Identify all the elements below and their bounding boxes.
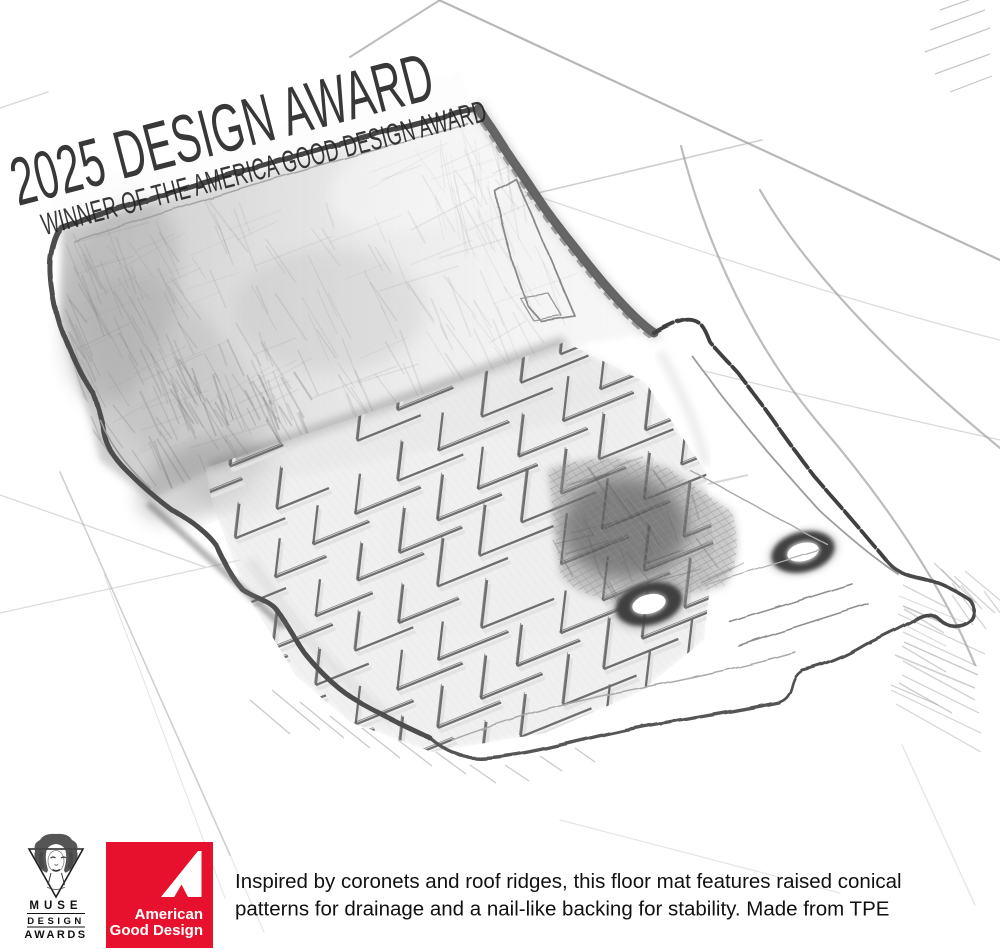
svg-text:AWARDS: AWARDS <box>24 929 87 941</box>
svg-text:Good Design: Good Design <box>110 922 203 939</box>
svg-text:Inspired by coronets and roof: Inspired by coronets and roof ridges, th… <box>235 870 902 893</box>
svg-text:American: American <box>135 906 203 923</box>
svg-text:patterns for drainage and a na: patterns for drainage and a nail-like ba… <box>235 898 889 921</box>
svg-text:DESIGN: DESIGN <box>27 916 84 927</box>
svg-text:MUSE: MUSE <box>29 900 82 912</box>
